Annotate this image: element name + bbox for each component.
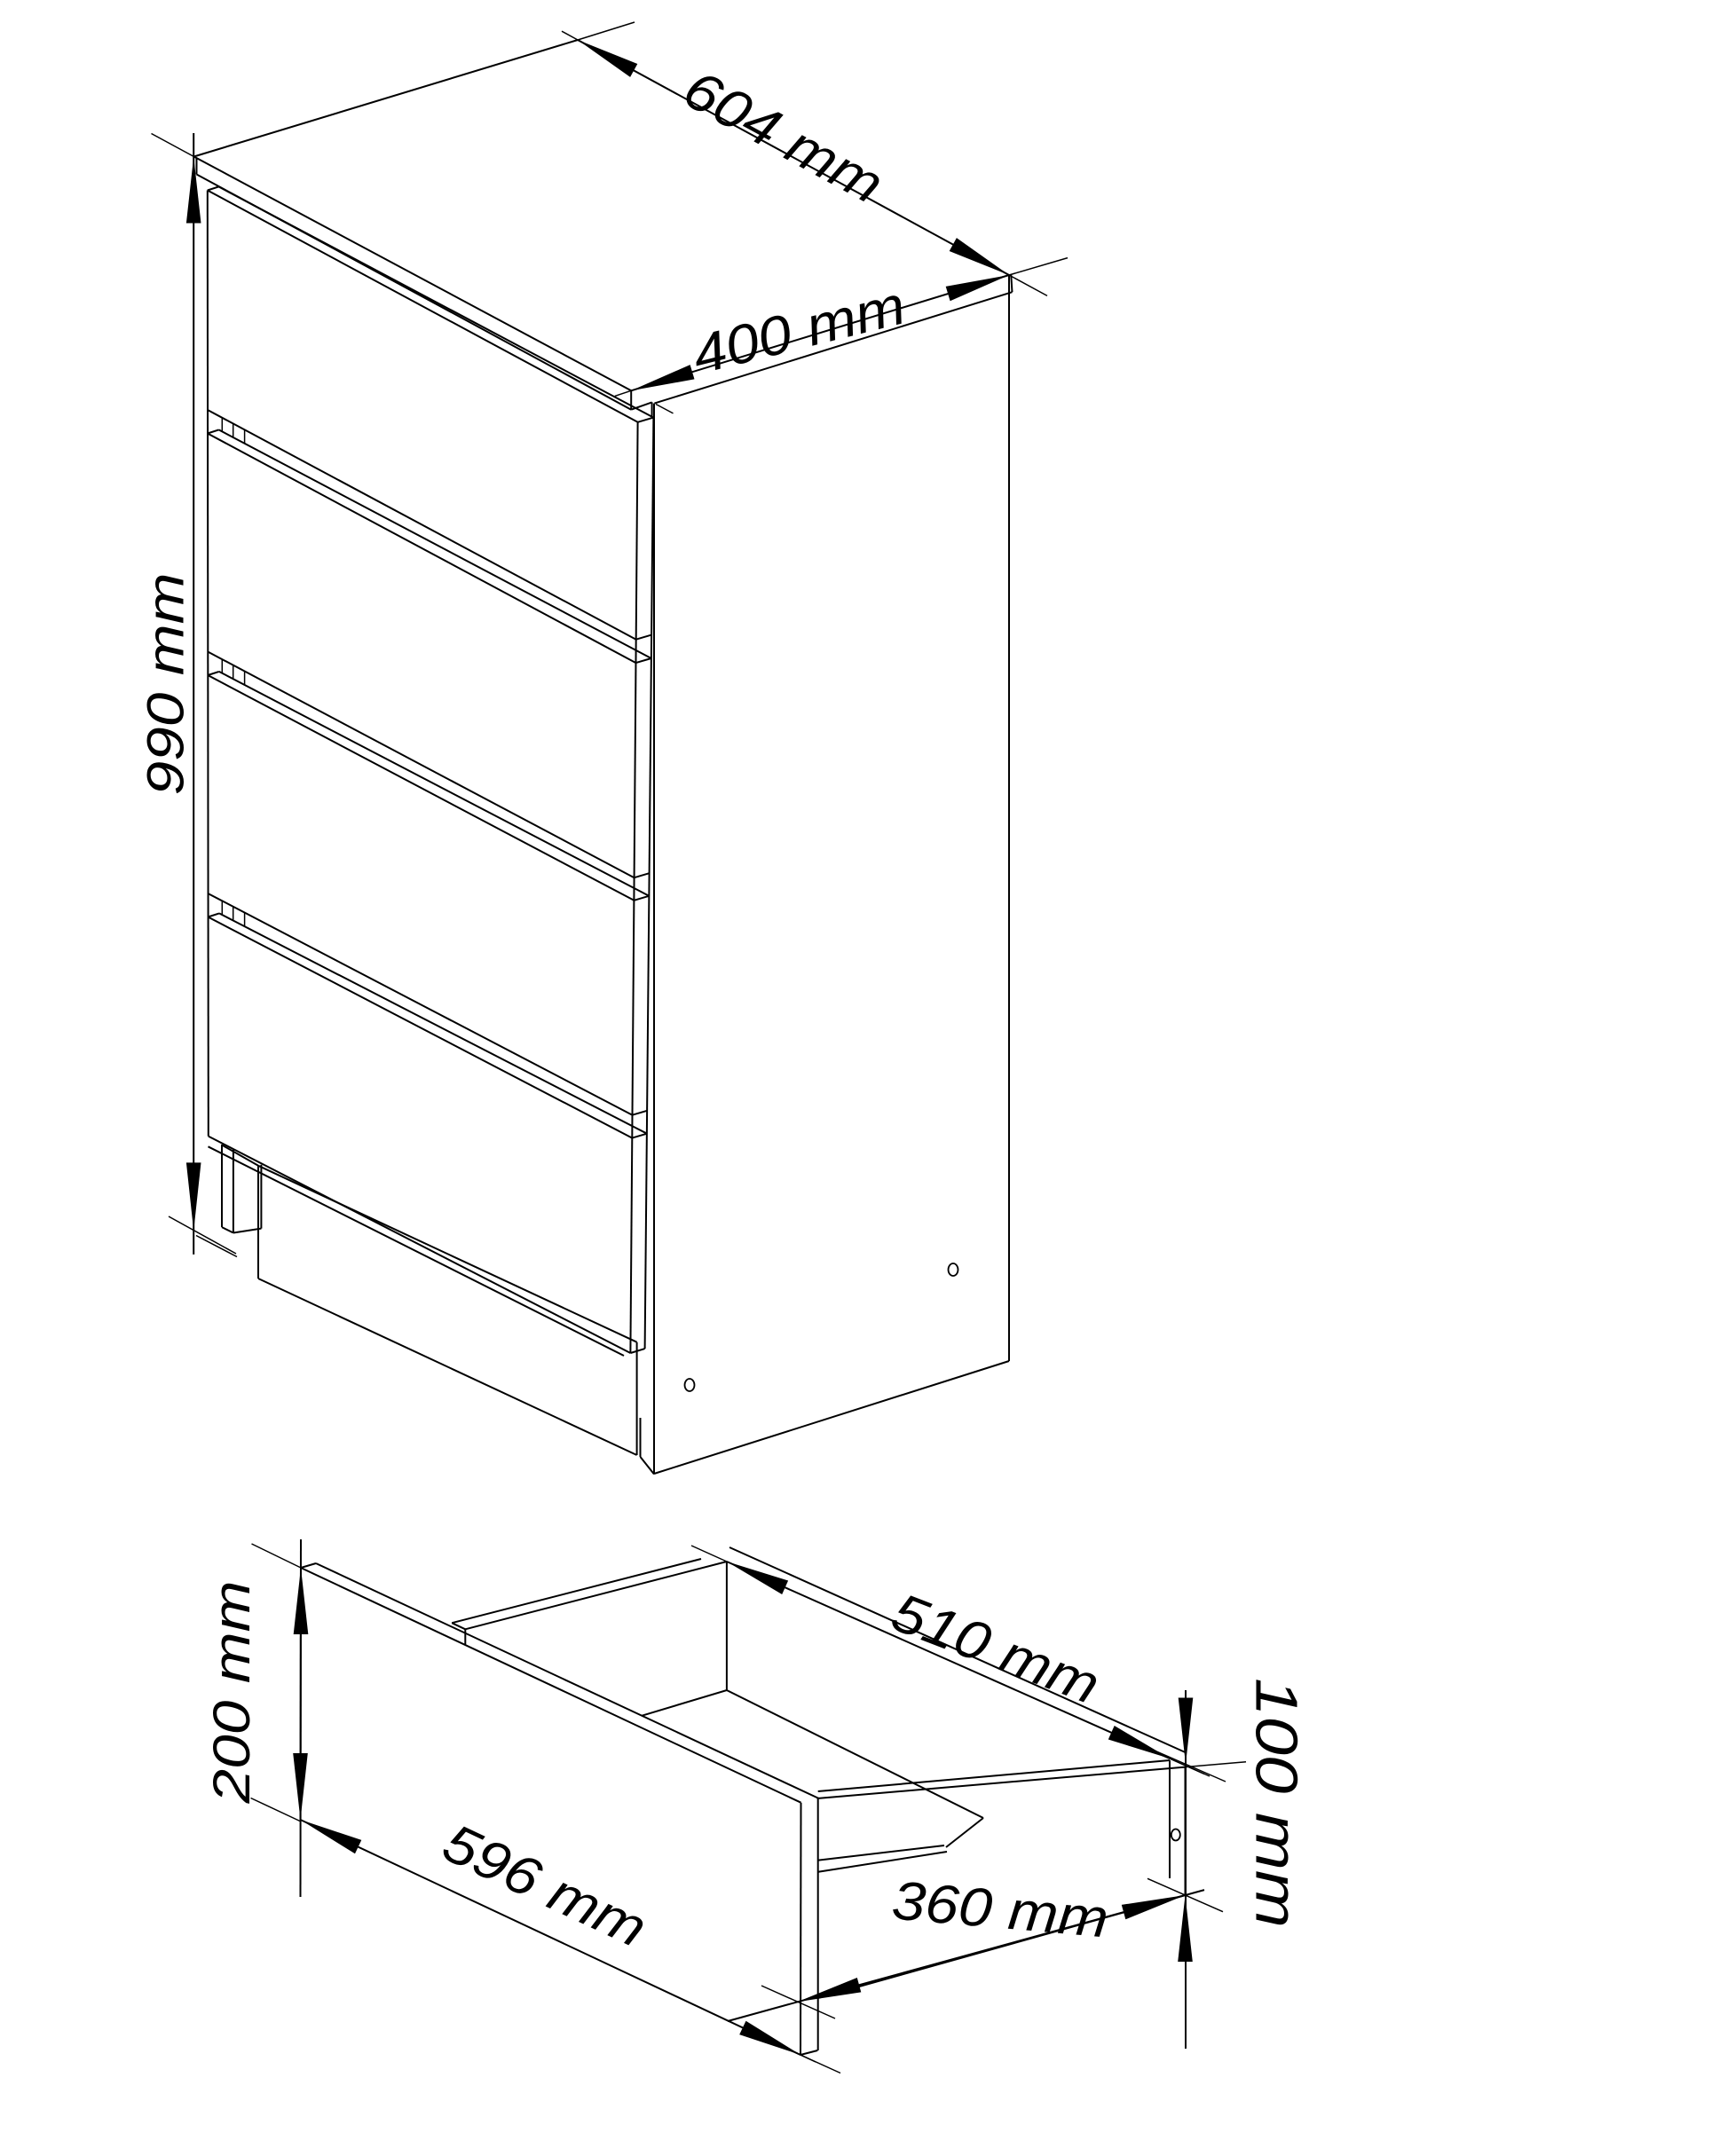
svg-text:990 mm: 990 mm <box>137 573 194 796</box>
svg-text:100 mm: 100 mm <box>1243 1678 1309 1928</box>
svg-text:200 mm: 200 mm <box>202 1581 260 1805</box>
